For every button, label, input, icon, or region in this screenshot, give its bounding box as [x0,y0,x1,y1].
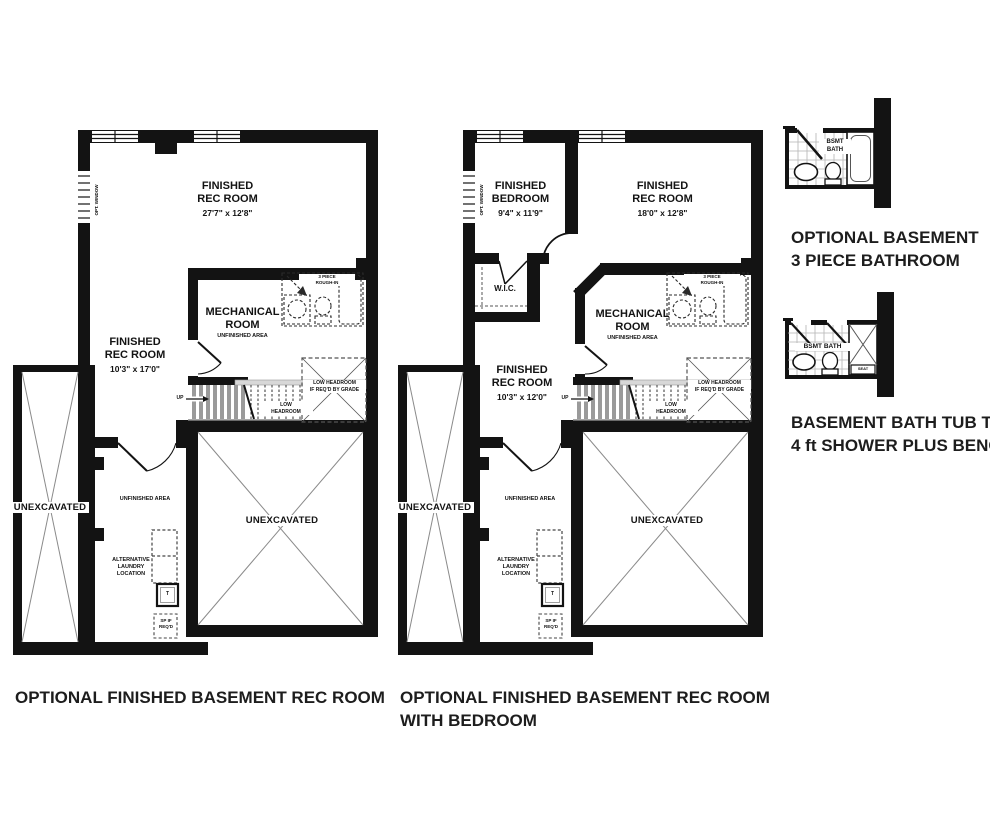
low-headroom-grade-label: LOW HEADROOM IF REQ'D BY GRADE [688,380,751,393]
unexcavated-side-label: UNEXCAVATED [11,502,89,513]
stairs-solid-treads [194,385,243,419]
caption-bathroom-3pc: OPTIONAL BASEMENT 3 PIECE BATHROOM [791,227,990,272]
sump-label: SP IF REQ'D [538,618,564,630]
room-label-mechanical: MECHANICAL ROOM UNFINISHED AREA [185,306,300,340]
alt-laundry-label: ALTERNATIVE LAUNDRY LOCATION [94,557,168,578]
plan-rec-room: OPT. WINDOW FINISHED REC ROOM 27'7" x 12… [10,122,392,665]
caption-plan-rec-room: OPTIONAL FINISHED BASEMENT REC ROOM [15,687,415,710]
unexcavated-main-label: UNEXCAVATED [218,515,346,526]
room-label-rec-room-main: FINISHED REC ROOM 18'0" x 12'8" [590,180,735,218]
unfinished-area-sub: UNFINISHED AREA [575,335,690,342]
detail-shower-bench: BSMT BATH SEAT [783,290,943,415]
toilet-icon [822,353,838,376]
low-headroom-label: LOW HEADROOM [644,402,698,415]
tank-label: T [542,591,563,598]
detail-bathroom-3pc-drawing [783,95,943,225]
stair-newel-line [244,385,254,419]
room-label-rec-room-side: FINISHED REC ROOM 10'3" x 17'0" [70,336,200,374]
unfinished-area-sub: UNFINISHED AREA [185,333,300,340]
sink-icon [793,354,815,370]
room-label-bedroom: FINISHED BEDROOM 9'4" x 11'9" [453,180,588,218]
up-arrow-icon [186,396,209,402]
bathtub-icon [847,132,874,185]
low-headroom-label: LOW HEADROOM [259,402,313,415]
rough-in-label: 3 PIECE ROUGH-IN [299,274,355,286]
room-name: REC ROOM [150,193,305,206]
toilet-icon [825,163,841,186]
rough-in-label: 3 PIECE ROUGH-IN [684,274,740,286]
unexcavated-main-label: UNEXCAVATED [603,515,731,526]
plan-rec-room-with-bedroom: OPT. WINDOW FINISHED BEDROOM 9'4" x 11'9… [395,122,777,665]
detail-shower-bench-drawing [783,290,943,415]
room-dims: 27'7" x 12'8" [150,208,305,218]
room-label-rec-room-main: FINISHED REC ROOM 27'7" x 12'8" [150,180,305,218]
bsmt-bath-label: BSMT BATH [819,139,851,154]
low-headroom-grade-label: LOW HEADROOM IF REQ'D BY GRADE [303,380,366,393]
seat-label: SEAT [851,367,875,372]
wic-label: W.I.C. [480,284,530,294]
unfinished-area-label: UNFINISHED AREA [488,496,572,503]
basement-floorplan-sheet: OPT. WINDOW FINISHED REC ROOM 27'7" x 12… [0,0,990,819]
bsmt-bath-label: BSMT BATH [795,343,850,351]
exterior-wall [877,292,894,397]
caption-plan-bedroom: OPTIONAL FINISHED BASEMENT REC ROOM WITH… [400,687,770,732]
up-label: UP [172,395,188,402]
unexcavated-side-label: UNEXCAVATED [396,502,474,513]
unfinished-area-label: UNFINISHED AREA [103,496,187,503]
detail-bathroom-3pc: BSMT BATH [783,95,943,225]
room-name: FINISHED [150,180,305,193]
opt-window-label: OPT. WINDOW [94,174,100,226]
room-label-mechanical: MECHANICAL ROOM UNFINISHED AREA [575,308,690,342]
up-label: UP [557,395,573,402]
tank-label: T [157,591,178,598]
angled-wall [577,267,605,295]
sump-label: SP IF REQ'D [153,618,179,630]
caption-shower-bench: BASEMENT BATH TUB TO 4 ft SHOWER PLUS BE… [791,412,990,457]
alt-laundry-label: ALTERNATIVE LAUNDRY LOCATION [479,557,553,578]
sink-icon [795,164,818,181]
exterior-wall [874,98,891,208]
stair-newel-line [629,385,639,419]
